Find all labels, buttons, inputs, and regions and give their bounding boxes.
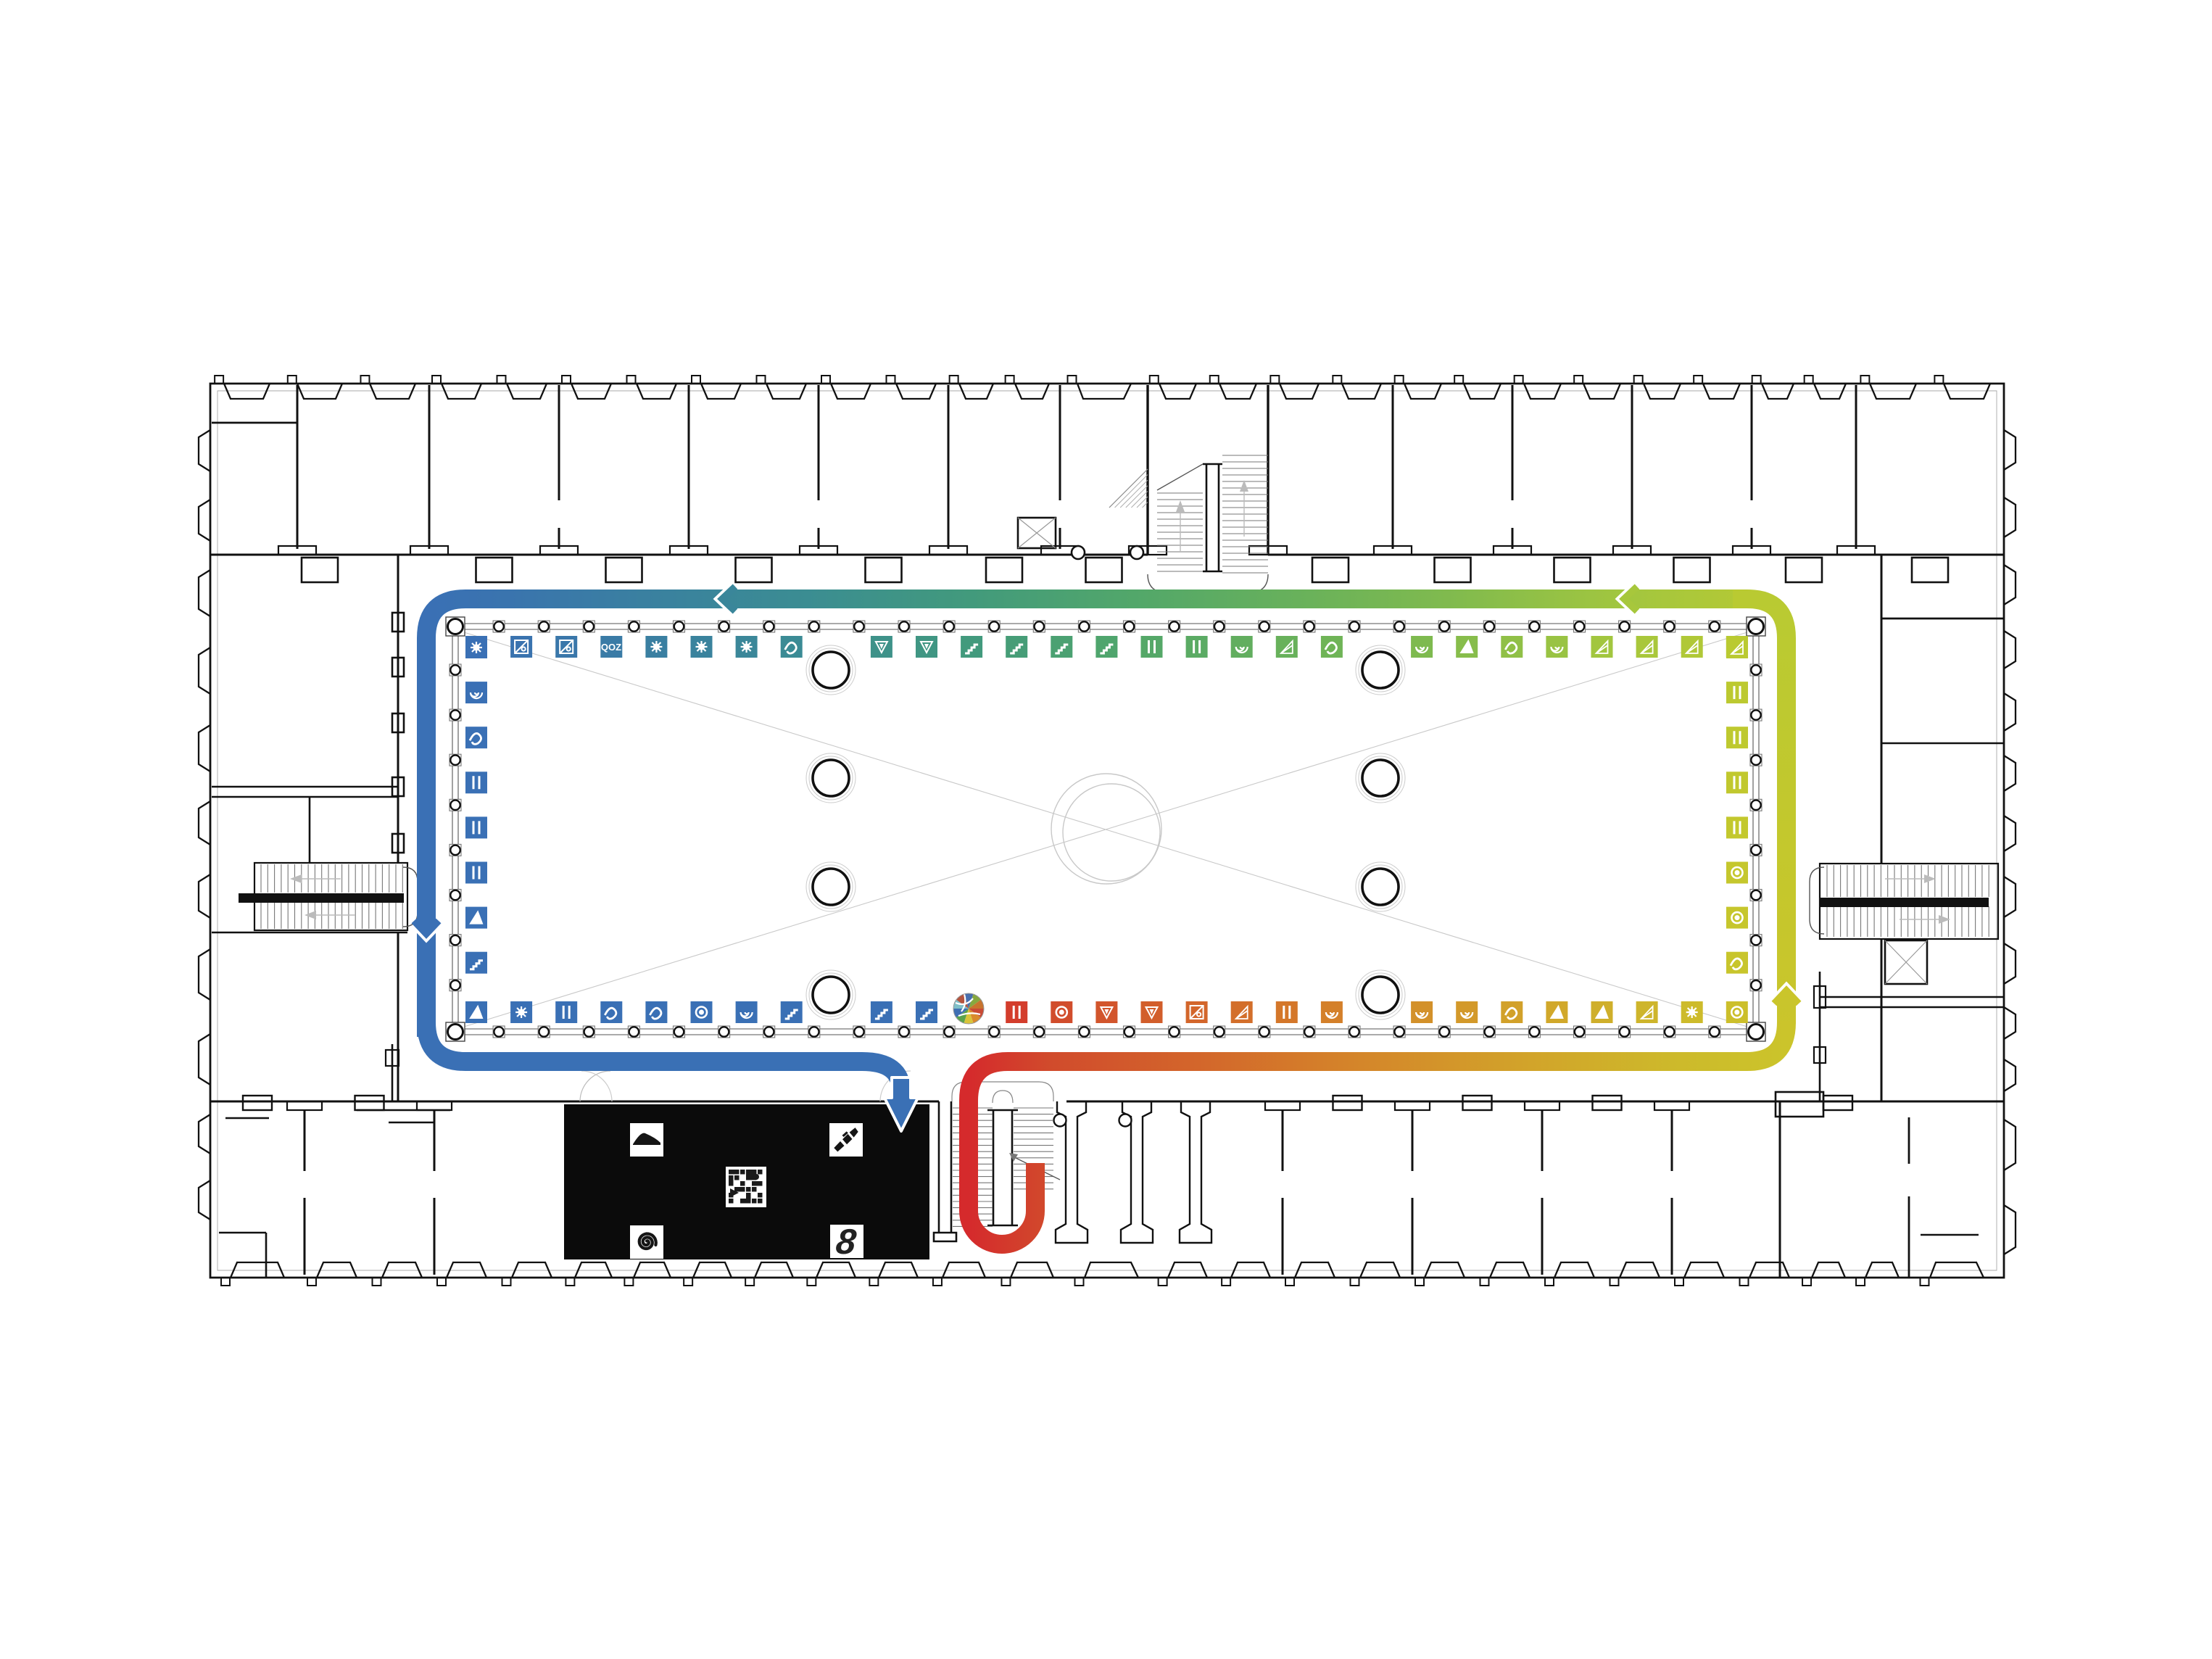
svg-text:QOZ: QOZ bbox=[601, 642, 621, 653]
